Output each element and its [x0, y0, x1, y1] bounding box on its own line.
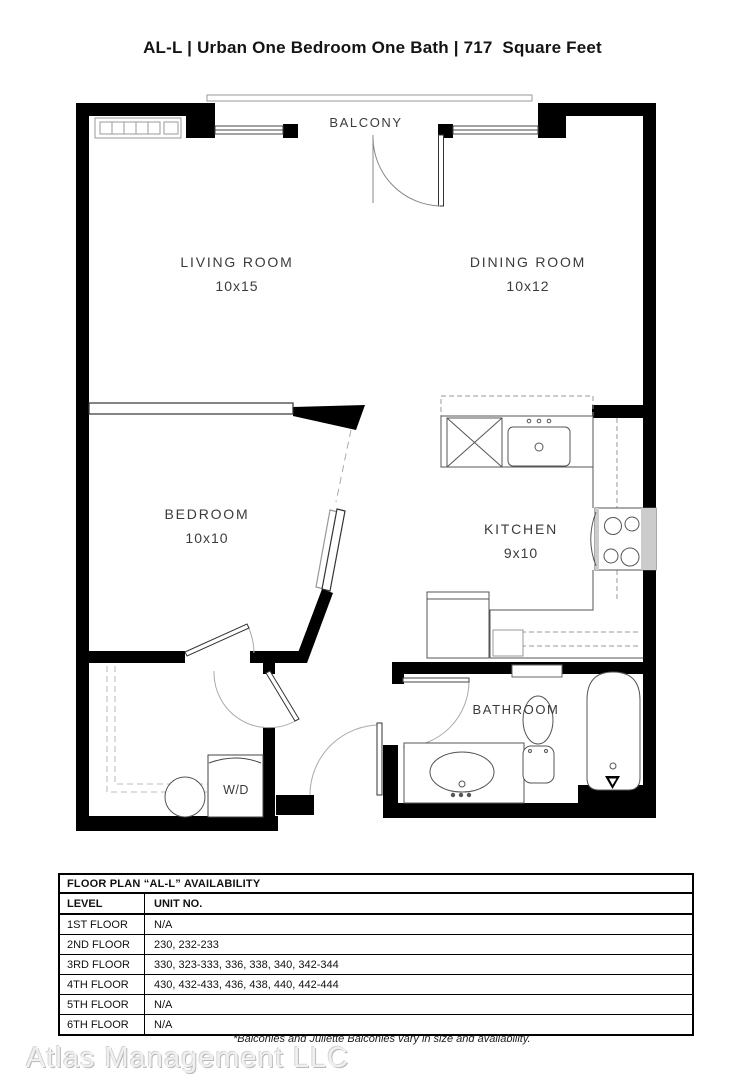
fridge-icon [427, 592, 489, 658]
dishwasher-icon [447, 418, 502, 467]
bedroom-door [185, 624, 254, 656]
vent-grille [95, 118, 181, 138]
bedroom-partition [89, 403, 351, 591]
balcony-slab [207, 95, 532, 101]
company-watermark: Atlas Management LLC [26, 1042, 349, 1075]
bathroom-niche [512, 665, 562, 677]
table-row: 6TH FLOOR N/A [60, 1015, 692, 1034]
col-header-level: LEVEL [60, 894, 145, 913]
bedroom-label: BEDROOM [165, 506, 250, 522]
col-header-unit: UNIT NO. [145, 894, 692, 913]
units-cell: 230, 232-233 [145, 935, 692, 954]
table-row: 4TH FLOOR 430, 432-433, 436, 438, 440, 4… [60, 975, 692, 995]
balcony-label: BALCONY [329, 115, 402, 130]
bathroom-label: BATHROOM [473, 702, 560, 717]
wd-label: W/D [223, 783, 249, 797]
level-cell: 6TH FLOOR [60, 1015, 145, 1034]
level-cell: 5TH FLOOR [60, 995, 145, 1014]
units-cell: N/A [145, 995, 692, 1014]
kitchen-dims: 9x10 [504, 545, 538, 561]
units-cell: N/A [145, 1015, 692, 1034]
page: AL-L | Urban One Bedroom One Bath | 717 … [0, 0, 745, 1080]
window-right [453, 126, 538, 134]
stove-icon [591, 508, 656, 570]
table-header-row: LEVEL UNIT NO. [60, 894, 692, 915]
level-cell: 2ND FLOOR [60, 935, 145, 954]
units-cell: 330, 323-333, 336, 338, 340, 342-344 [145, 955, 692, 974]
units-cell: N/A [145, 915, 692, 934]
kitchen-label: KITCHEN [484, 521, 558, 537]
table-row: 2ND FLOOR 230, 232-233 [60, 935, 692, 955]
table-row: 5TH FLOOR N/A [60, 995, 692, 1015]
units-cell: 430, 432-433, 436, 438, 440, 442-444 [145, 975, 692, 994]
peninsula-appliance [493, 630, 523, 656]
dining-dims: 10x12 [506, 278, 549, 294]
entry-door [310, 723, 382, 795]
bathtub-icon [587, 672, 640, 790]
level-cell: 4TH FLOOR [60, 975, 145, 994]
sliding-door [316, 509, 345, 591]
balcony-door [373, 135, 444, 206]
dining-label: DINING ROOM [470, 254, 586, 270]
window-left [215, 126, 283, 134]
vanity-sink-icon [404, 743, 524, 803]
bedroom-dims: 10x10 [185, 530, 228, 546]
level-cell: 3RD FLOOR [60, 955, 145, 974]
table-row: 3RD FLOOR 330, 323-333, 336, 338, 340, 3… [60, 955, 692, 975]
living-label: LIVING ROOM [180, 254, 293, 270]
level-cell: 1ST FLOOR [60, 915, 145, 934]
floor-plan: BALCONY LIVING ROOM 10x15 DINING ROOM 10… [0, 0, 745, 870]
availability-table-title: FLOOR PLAN “AL-L” AVAILABILITY [60, 875, 692, 894]
living-dims: 10x15 [215, 278, 258, 294]
water-heater-icon [165, 777, 205, 817]
availability-table: FLOOR PLAN “AL-L” AVAILABILITY LEVEL UNI… [58, 873, 694, 1036]
bathroom-door [403, 678, 469, 747]
laundry-door [214, 671, 299, 728]
table-row: 1ST FLOOR N/A [60, 915, 692, 935]
